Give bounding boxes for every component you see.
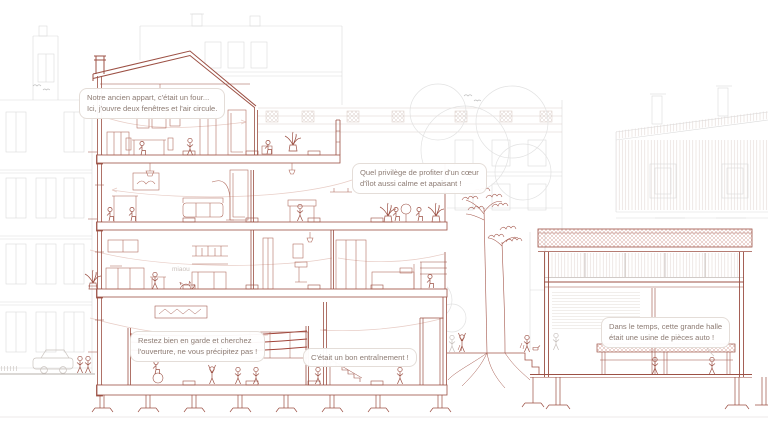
- speech-bubble-apartment: Notre ancien appart, c'était un four... …: [79, 88, 225, 119]
- halle-roof-tiles: [538, 229, 752, 247]
- bubble-text-line: Notre ancien appart, c'était un four...: [87, 92, 217, 103]
- foundations: [92, 395, 451, 412]
- speech-bubble-training: C'était un bon entraînement !: [303, 348, 417, 367]
- car: [33, 350, 73, 373]
- halle-foundations: [522, 377, 768, 409]
- courtyard-people: [459, 333, 541, 352]
- bubble-text-line: C'était un bon entraînement !: [311, 352, 409, 363]
- bubble-text-line: Ici, j'ouvre deux fenêtres et l'air circ…: [87, 103, 217, 114]
- attic-terrace: [262, 120, 340, 155]
- halle-clerestory: [549, 253, 739, 277]
- bubble-text-line: d'îlot aussi calme et apaisant !: [360, 178, 479, 189]
- watermark: [1, 366, 19, 371]
- speech-bubble-guard: Restez bien en garde et cherchez l'ouver…: [130, 331, 265, 362]
- speech-bubble-halle: Dans le temps, cette grande halle était …: [601, 317, 730, 348]
- courtyard: [447, 188, 540, 388]
- courtyard-trees: [448, 188, 530, 388]
- speech-bubble-courtyard: Quel privilège de profiter d'un cœur d'î…: [352, 163, 487, 194]
- bubble-text-line: l'ouverture, ne vous précipitez pas !: [138, 346, 257, 357]
- bubble-text-line: Quel privilège de profiter d'un cœur: [360, 167, 479, 178]
- bubble-text-line: était une usine de pièces auto !: [609, 332, 722, 343]
- illustration-canvas: Notre ancien appart, c'était un four... …: [0, 0, 768, 427]
- bubble-text-line: Dans le temps, cette grande halle: [609, 321, 722, 332]
- pedestrians: [77, 356, 91, 373]
- cat-sound-label: miaou: [172, 266, 190, 273]
- bubble-text-line: Restez bien en garde et cherchez: [138, 335, 257, 346]
